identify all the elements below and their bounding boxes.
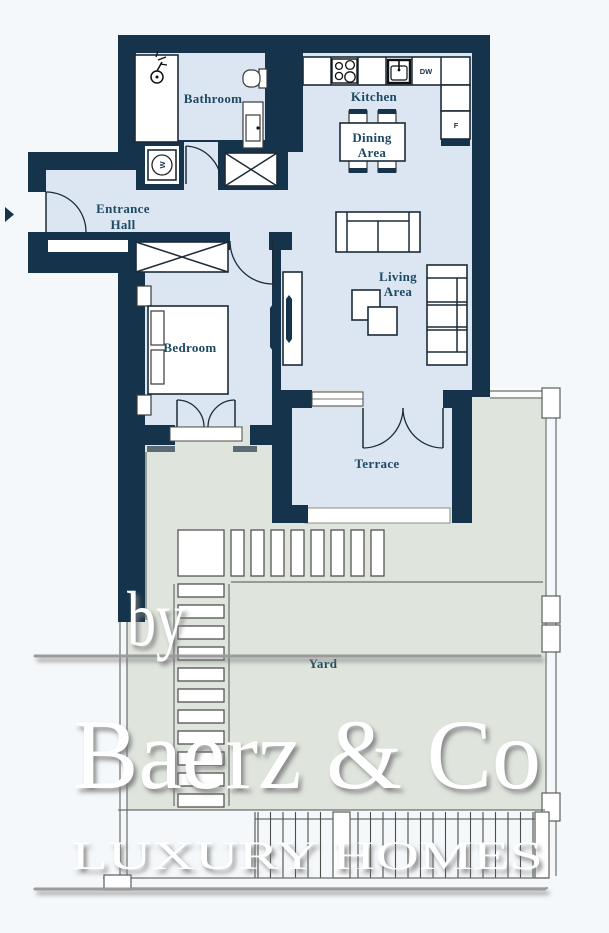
tv-icon — [286, 295, 292, 343]
floor-plan-canvas: W DW F — [0, 0, 609, 933]
floor-plan: W DW F — [0, 0, 609, 933]
door-sill — [147, 446, 175, 452]
hall-window — [48, 240, 128, 252]
kitchen-tall-units: F — [441, 85, 470, 139]
wardrobe — [136, 242, 228, 272]
tv-unit — [283, 272, 302, 365]
bathroom-doorway — [184, 142, 218, 190]
sink-vanity — [243, 102, 263, 148]
room-label-dining-1: Dining — [352, 130, 392, 145]
washing-machine-icon: W — [145, 146, 179, 184]
toilet-icon — [243, 69, 267, 88]
terrace-step — [305, 508, 450, 523]
pillow — [151, 311, 164, 345]
kitchen-sink-icon — [388, 60, 410, 83]
nightstand — [137, 395, 151, 415]
room-label-dining-2: Area — [358, 145, 387, 160]
room-label-entrance-1: Entrance — [96, 201, 150, 216]
room-label-terrace: Terrace — [355, 456, 400, 471]
bedroom-door-threshold — [170, 427, 242, 441]
dishwasher-label: DW — [420, 67, 433, 76]
room-label-living-1: Living — [379, 269, 417, 284]
room-label-entrance-2: Hall — [110, 217, 135, 232]
bedroom-tv-icon — [270, 304, 276, 351]
washer-label: W — [158, 161, 167, 169]
fridge-label: F — [454, 121, 459, 130]
sofa — [336, 212, 420, 252]
side-sofa — [427, 265, 467, 365]
shower — [135, 55, 178, 142]
hob-icon — [332, 59, 357, 83]
door-sill — [233, 446, 257, 452]
room-label-living-2: Area — [384, 284, 413, 299]
pillow — [151, 350, 164, 384]
room-label-bathroom: Bathroom — [184, 91, 243, 106]
room-label-kitchen: Kitchen — [351, 89, 398, 104]
nightstand — [137, 286, 151, 306]
stair-landing — [178, 530, 224, 576]
room-label-yard: Yard — [309, 656, 338, 671]
watermark-brand: Baerz & Co — [73, 699, 541, 810]
watermark-by: by — [127, 575, 185, 662]
hall-closet — [225, 153, 277, 186]
room-label-bedroom: Bedroom — [163, 340, 216, 355]
watermark-tagline: LUXURY HOMES — [71, 833, 543, 878]
fence-rail-band — [490, 388, 542, 399]
living-window — [312, 392, 363, 406]
